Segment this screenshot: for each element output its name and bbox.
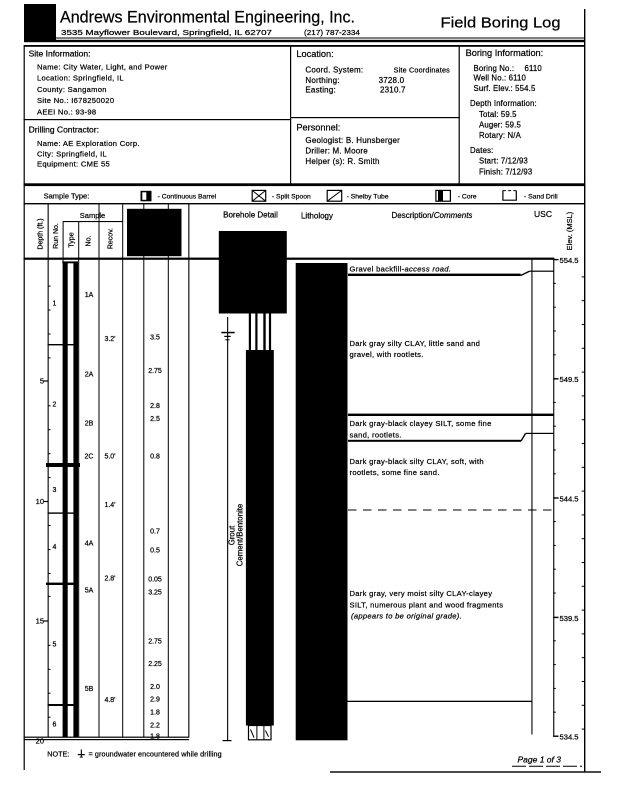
svg-text:20: 20 <box>36 737 44 746</box>
svg-text:549.5: 549.5 <box>560 375 579 384</box>
svg-text:0.7: 0.7 <box>150 529 160 536</box>
svg-text:2.25: 2.25 <box>148 661 162 668</box>
svg-text:Site No.: I678250020: Site No.: I678250020 <box>37 96 114 105</box>
svg-text:SILT, numerous plant and wood: SILT, numerous plant and wood fragments <box>350 600 504 609</box>
svg-text:0.5: 0.5 <box>150 548 160 555</box>
svg-text:3535 Mayflower Boulevard, Spri: 3535 Mayflower Boulevard, Springfield, I… <box>61 28 272 37</box>
svg-text:2.75: 2.75 <box>148 368 162 375</box>
svg-text:2.75: 2.75 <box>148 639 162 646</box>
svg-text:Dates:: Dates: <box>470 146 493 155</box>
svg-text:Depth Information:: Depth Information: <box>470 99 537 108</box>
svg-text:Elev. (MSL): Elev. (MSL) <box>565 211 574 250</box>
svg-text:Page 1 of 3: Page 1 of 3 <box>518 755 562 765</box>
svg-text:539.5: 539.5 <box>560 614 579 623</box>
svg-text:- Split Spoon: - Split Spoon <box>272 193 311 200</box>
svg-text:- Continuous Barrel: - Continuous Barrel <box>158 193 217 200</box>
svg-text:2.0: 2.0 <box>150 684 160 691</box>
svg-text:534.5: 534.5 <box>560 733 579 742</box>
svg-text:Field Boring Log: Field Boring Log <box>441 16 561 32</box>
svg-text:2B: 2B <box>85 420 94 427</box>
svg-text:County: Sangamon: County: Sangamon <box>37 85 107 94</box>
svg-text:Surf. Elev.: 554.5: Surf. Elev.: 554.5 <box>474 84 536 93</box>
svg-text:No.: No. <box>86 236 93 247</box>
svg-text:2C: 2C <box>85 454 94 461</box>
svg-text:Finish: 7/12/93: Finish: 7/12/93 <box>479 167 532 176</box>
svg-text:Dark gray, very moist silty CL: Dark gray, very moist silty CLAY-clayey <box>350 589 493 598</box>
svg-text:3.2': 3.2' <box>104 336 115 343</box>
svg-text:Total: 59.5: Total: 59.5 <box>479 110 517 119</box>
svg-text:2.8': 2.8' <box>104 575 115 582</box>
svg-text:5A: 5A <box>85 587 94 594</box>
svg-text:10: 10 <box>36 497 44 506</box>
svg-text:5: 5 <box>40 377 44 386</box>
svg-text:4A: 4A <box>85 541 94 548</box>
svg-text:Name: AE Exploration Corp.: Name: AE Exploration Corp. <box>37 139 140 148</box>
svg-text:3: 3 <box>53 487 57 494</box>
svg-text:Start: 7/12/93: Start: 7/12/93 <box>479 157 528 166</box>
svg-text:- Shelby Tube: - Shelby Tube <box>347 193 389 200</box>
svg-text:Boring Information:: Boring Information: <box>466 48 544 58</box>
svg-text:5B: 5B <box>85 686 94 693</box>
svg-text:0.05: 0.05 <box>148 576 162 583</box>
svg-text:Easting:: Easting: <box>305 86 336 95</box>
svg-text:= groundwater encountered whil: = groundwater encountered while drilling <box>89 750 222 759</box>
svg-text:Type: Type <box>68 232 75 247</box>
svg-text:4.8': 4.8' <box>104 697 115 704</box>
svg-text:0.8: 0.8 <box>150 454 160 461</box>
svg-text:3.25: 3.25 <box>148 589 162 596</box>
svg-text:2.9: 2.9 <box>150 697 160 704</box>
svg-text:Name: City Water, Light, and: Name: City Water, Light, and Power <box>37 63 168 72</box>
svg-text:2310.7: 2310.7 <box>380 86 406 95</box>
svg-text:Boring No.:6110: Boring No.:6110 <box>474 64 543 73</box>
svg-text:4: 4 <box>53 544 57 551</box>
svg-text:Location:: Location: <box>296 49 333 59</box>
svg-text:City: Springfield, IL: City: Springfield, IL <box>37 150 107 159</box>
svg-text:Location: Springfield, IL: Location: Springfield, IL <box>37 74 124 83</box>
svg-text:6: 6 <box>53 721 57 728</box>
svg-text:Geologist: B. Hunsberger: Geologist: B. Hunsberger <box>305 136 400 145</box>
svg-text:15: 15 <box>36 617 44 626</box>
svg-text:NOTE:: NOTE: <box>47 750 69 759</box>
svg-text:Lithology: Lithology <box>301 212 333 221</box>
svg-text:sand, rootlets.: sand, rootlets. <box>350 430 402 439</box>
svg-text:Recov.: Recov. <box>108 228 115 249</box>
svg-text:1.8: 1.8 <box>150 710 160 717</box>
svg-text:Sample Type:: Sample Type: <box>44 191 90 200</box>
svg-text:Description/Comments: Description/Comments <box>392 211 473 220</box>
svg-text:Site Information:: Site Information: <box>29 49 91 59</box>
svg-text:Borehole Detail: Borehole Detail <box>223 211 278 220</box>
svg-text:Run No.: Run No. <box>53 223 60 249</box>
svg-text:Rotary: N/A: Rotary: N/A <box>479 131 522 140</box>
svg-text:Well No.: 6110: Well No.: 6110 <box>474 73 527 82</box>
svg-text:5.0': 5.0' <box>104 454 115 461</box>
svg-text:(217) 787-2334: (217) 787-2334 <box>304 28 360 37</box>
svg-text:2.2: 2.2 <box>150 723 160 730</box>
svg-text:Auger: 59.5: Auger: 59.5 <box>479 120 521 129</box>
svg-text:Sample: Sample <box>80 211 105 220</box>
svg-text:Grout: Grout <box>228 525 237 545</box>
svg-text:Personnel:: Personnel: <box>296 123 340 133</box>
svg-text:3.5: 3.5 <box>150 335 160 342</box>
svg-text:Northing:: Northing: <box>305 76 339 85</box>
svg-text:3728.0: 3728.0 <box>379 76 405 85</box>
svg-text:2.8: 2.8 <box>150 403 160 410</box>
svg-text:USC: USC <box>534 209 552 219</box>
svg-text:Coord. System:: Coord. System: <box>305 66 363 75</box>
svg-text:Drilling Contractor:: Drilling Contractor: <box>29 125 99 135</box>
svg-text:gravel, with rootlets.: gravel, with rootlets. <box>350 350 424 359</box>
svg-text:Andrews Environmental Engineer: Andrews Environmental Engineering, Inc. <box>60 8 355 27</box>
svg-text:554.5: 554.5 <box>560 256 579 265</box>
svg-text:Gravel backfill-access road.: Gravel backfill-access road. <box>350 265 452 274</box>
svg-text:Cement/Bentonite: Cement/Bentonite <box>236 504 245 566</box>
svg-text:rootlets, some fine sand.: rootlets, some fine sand. <box>350 468 440 477</box>
svg-text:Depth (ft.): Depth (ft.) <box>38 218 45 249</box>
svg-text:Dark gray-black clayey SILT, s: Dark gray-black clayey SILT, some fine <box>350 419 492 428</box>
svg-text:(appears to be original grade): (appears to be original grade). <box>351 612 462 621</box>
svg-text:- Sand Drill: - Sand Drill <box>524 193 558 200</box>
svg-text:Equipment: CME 55: Equipment: CME 55 <box>37 160 110 169</box>
svg-text:Helper (s): R. Smith: Helper (s): R. Smith <box>305 157 379 166</box>
svg-text:AEEI No.: 93-98: AEEI No.: 93-98 <box>37 108 96 117</box>
svg-text:Site Coordinates: Site Coordinates <box>394 66 451 75</box>
svg-text:Dark gray silty CLAY, little s: Dark gray silty CLAY, little sand and <box>350 339 481 348</box>
svg-text:2: 2 <box>53 402 57 409</box>
svg-text:544.5: 544.5 <box>560 494 579 503</box>
svg-text:Driller: M. Moore: Driller: M. Moore <box>305 147 368 156</box>
svg-text:2.5: 2.5 <box>150 416 160 423</box>
svg-text:1.4': 1.4' <box>104 502 115 509</box>
svg-text:1: 1 <box>53 301 57 308</box>
svg-text:5: 5 <box>53 642 57 649</box>
svg-text:2A: 2A <box>85 371 94 378</box>
svg-text:- Core: - Core <box>458 193 477 200</box>
svg-text:1A: 1A <box>85 292 94 299</box>
svg-text:Dark gray-black silty CLAY, so: Dark gray-black silty CLAY, soft, with <box>350 457 484 466</box>
